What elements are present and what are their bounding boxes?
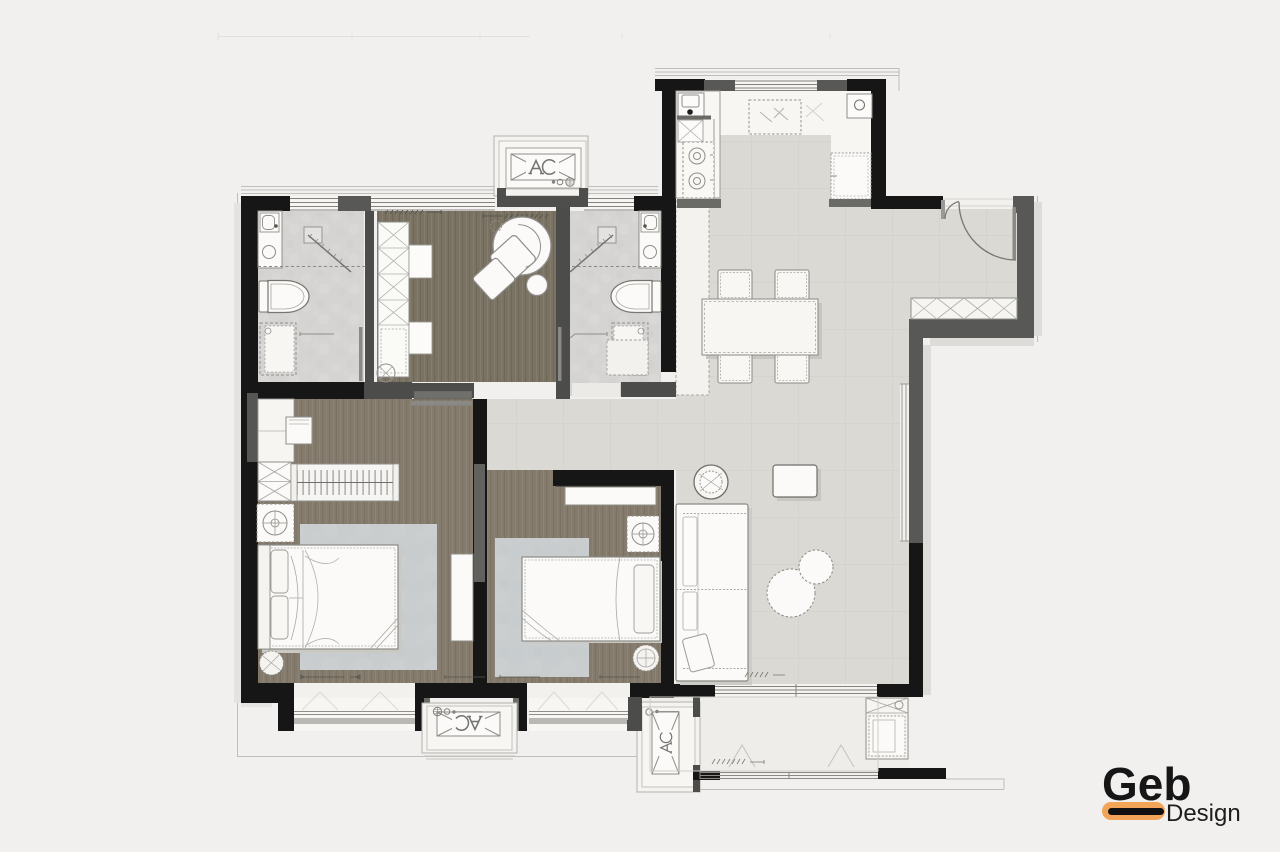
svg-text:Design: Design [1166,800,1241,827]
